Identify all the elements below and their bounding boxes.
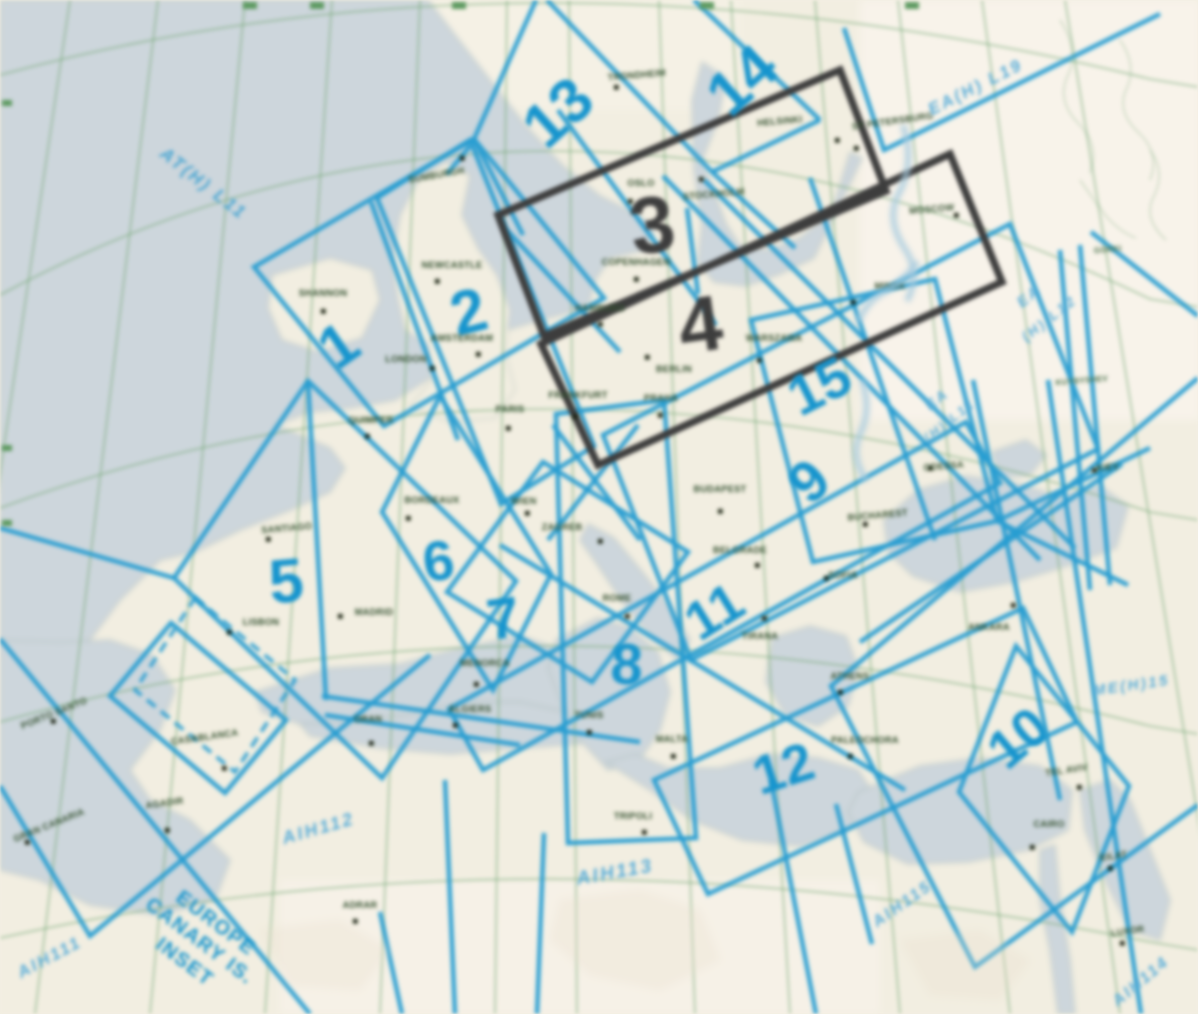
svg-text:5: 5 (266, 546, 306, 618)
svg-text:QUIMPER: QUIMPER (349, 415, 394, 425)
svg-text:MENORCA: MENORCA (460, 658, 510, 668)
svg-text:MALTA: MALTA (656, 734, 688, 744)
svg-text:PARIS: PARIS (496, 404, 525, 414)
svg-text:LONDON: LONDON (385, 354, 427, 364)
svg-text:PRAHA: PRAHA (644, 393, 678, 403)
svg-text:WIEN: WIEN (511, 496, 536, 506)
svg-text:TIRANA: TIRANA (742, 631, 779, 641)
svg-text:ZAGREB: ZAGREB (542, 522, 583, 532)
svg-text:BORDEAUX: BORDEAUX (405, 495, 461, 505)
svg-text:SOFIA: SOFIA (828, 570, 858, 580)
svg-text:COPENHAGEN: COPENHAGEN (602, 257, 671, 267)
svg-text:HAMBURG: HAMBURG (575, 303, 625, 313)
svg-text:ALGIERS: ALGIERS (449, 704, 492, 714)
svg-text:PALEOCHORA: PALEOCHORA (831, 735, 899, 745)
svg-text:ROME: ROME (603, 593, 632, 603)
svg-text:WARSZAWA: WARSZAWA (746, 333, 803, 343)
svg-text:BERLIN: BERLIN (656, 364, 692, 374)
svg-text:FRANKFURT: FRANKFURT (548, 390, 607, 400)
svg-text:TRIPOLI: TRIPOLI (614, 811, 652, 821)
svg-text:OSLO: OSLO (627, 178, 654, 188)
svg-text:LISBON: LISBON (243, 617, 280, 627)
svg-text:BELGRADE: BELGRADE (713, 545, 767, 555)
svg-text:NEWCASTLE: NEWCASTLE (422, 260, 483, 270)
svg-text:ATHENS: ATHENS (831, 671, 870, 681)
svg-text:AMSTERDAM: AMSTERDAM (431, 333, 493, 343)
svg-text:MADRID: MADRID (355, 607, 394, 617)
svg-text:TUNIS: TUNIS (574, 710, 603, 720)
svg-text:ADRAR: ADRAR (343, 900, 378, 910)
svg-text:SHANNON: SHANNON (299, 288, 348, 298)
svg-text:KIEV: KIEV (1096, 461, 1120, 473)
svg-text:BUDAPEST: BUDAPEST (694, 484, 747, 494)
svg-text:8: 8 (609, 631, 644, 697)
svg-text:ANKARA: ANKARA (968, 622, 1010, 632)
svg-text:ORAN: ORAN (354, 714, 382, 724)
svg-text:CAIRO: CAIRO (1033, 819, 1064, 829)
